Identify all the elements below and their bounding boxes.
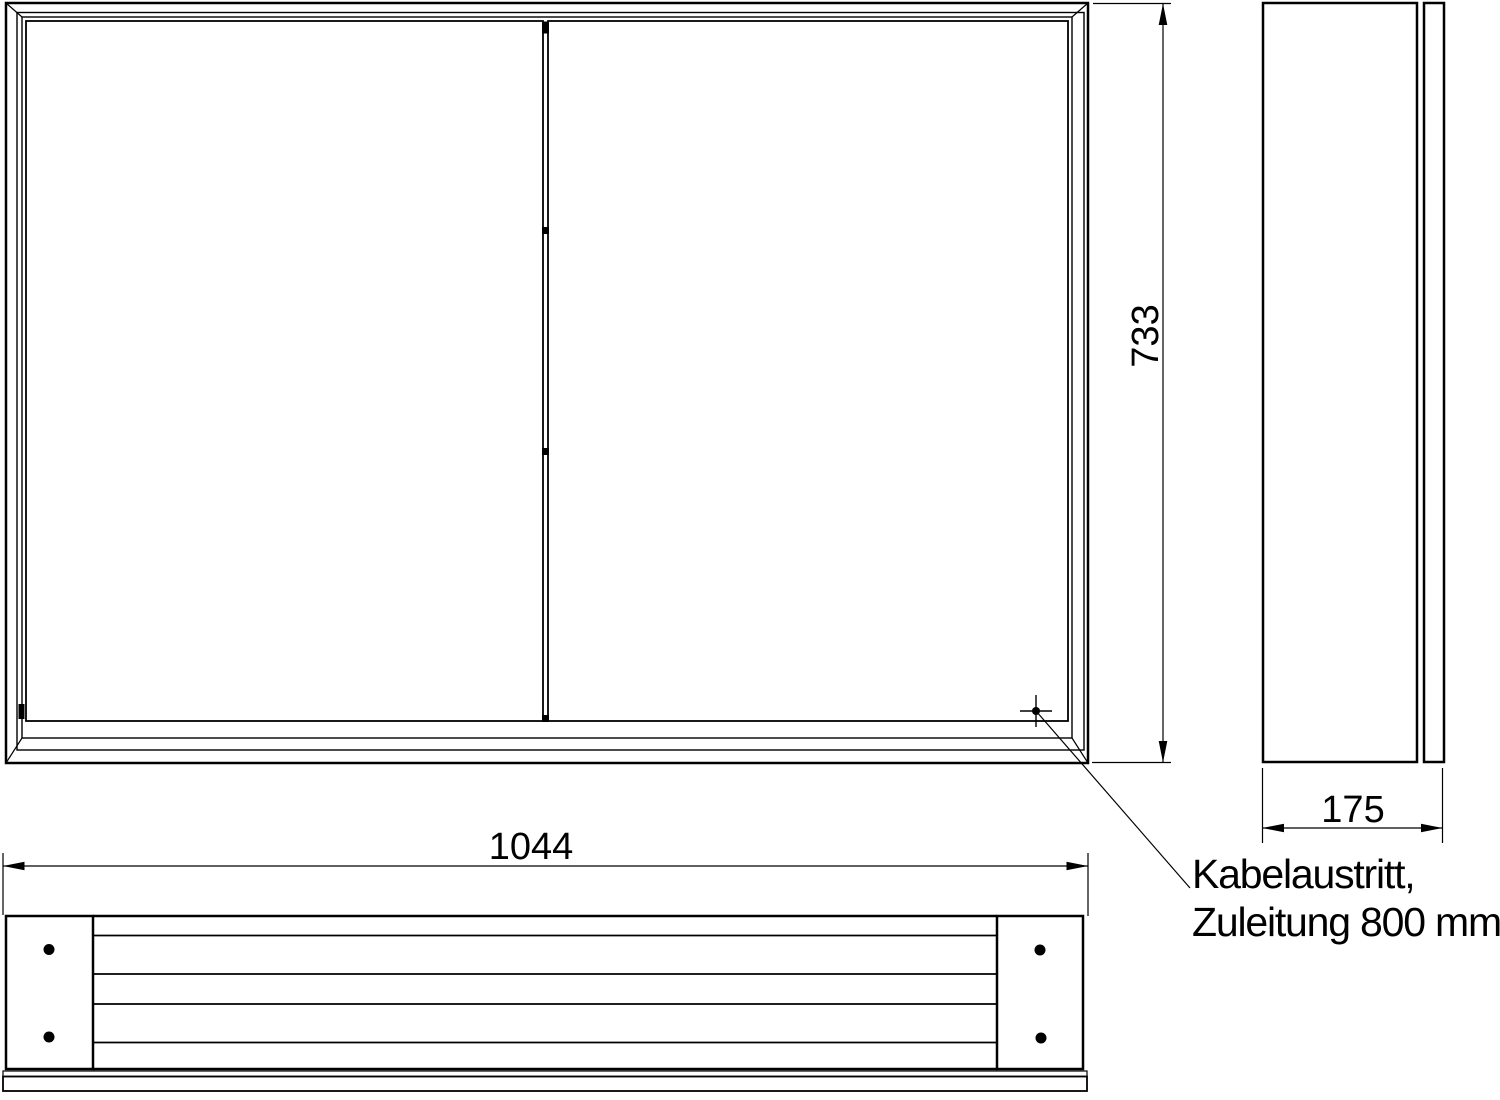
bottom-mount-plate-left — [6, 916, 93, 1069]
front-chamfer-inner-edge — [22, 17, 1072, 738]
front-chamfer-outer-edge — [17, 13, 1084, 751]
arrowhead-left — [3, 862, 25, 871]
side-view — [1263, 3, 1444, 762]
door-gap-mark — [542, 22, 549, 34]
screw-hole — [1036, 1033, 1047, 1044]
cable-note-line2: Zuleitung 800 mm — [1192, 899, 1500, 945]
front-outer-frame — [6, 3, 1088, 763]
screw-hole — [44, 1032, 55, 1043]
screw-hole — [1035, 945, 1046, 956]
bottom-mount-plate-right — [997, 916, 1083, 1069]
side-cabinet-body — [1263, 3, 1417, 762]
bottom-view — [3, 916, 1087, 1091]
arrowhead-down — [1159, 741, 1168, 763]
technical-drawing-canvas: 733 1044 175 Kabelaustritt, Zuleitung 80… — [0, 0, 1500, 1100]
dimension-width: 1044 — [3, 826, 1088, 916]
screw-hole — [44, 944, 55, 955]
dimension-label-width: 1044 — [489, 826, 574, 868]
arrowhead-right — [1421, 824, 1443, 833]
arrowhead-right — [1067, 862, 1089, 871]
mirror-door-left — [26, 21, 543, 721]
mitre-line-top-left — [6, 3, 22, 17]
front-view — [6, 3, 1088, 763]
dimension-depth: 175 — [1263, 768, 1443, 843]
frame-hinge-mark — [19, 704, 25, 719]
mitre-line-top-right — [1072, 3, 1088, 17]
dimension-label-height: 733 — [1125, 304, 1167, 367]
arrowhead-left — [1263, 824, 1285, 833]
cable-note-line1: Kabelaustritt, — [1192, 851, 1415, 897]
door-gap-mark — [542, 715, 549, 722]
door-gap-mark — [542, 448, 549, 455]
door-gap-mark — [542, 227, 549, 234]
arrowhead-up — [1159, 4, 1168, 26]
mirror-door-right — [548, 21, 1068, 721]
dimension-height: 733 — [1092, 4, 1171, 763]
leader-line — [1036, 711, 1190, 888]
dimension-label-depth: 175 — [1321, 789, 1384, 831]
bottom-front-strip — [3, 1077, 1087, 1092]
side-mirror-door — [1424, 3, 1444, 762]
